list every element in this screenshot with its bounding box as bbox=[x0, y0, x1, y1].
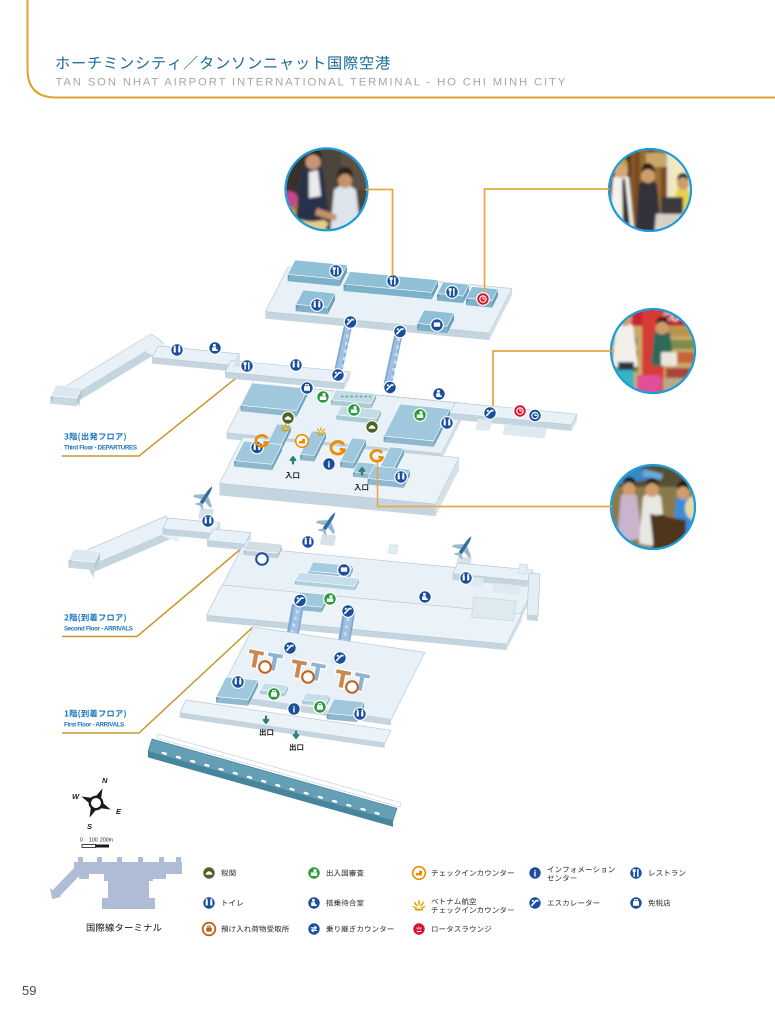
svg-text:Second Floor - ARRIVALS: Second Floor - ARRIVALS bbox=[64, 626, 133, 633]
svg-text:0: 0 bbox=[80, 838, 83, 844]
svg-text:59: 59 bbox=[22, 983, 36, 998]
svg-text:i: i bbox=[328, 459, 331, 470]
svg-text:i: i bbox=[534, 868, 537, 879]
svg-text:i: i bbox=[293, 704, 296, 715]
svg-text:W: W bbox=[72, 792, 80, 801]
svg-text:TAN SON NHAT AIRPORT INTERNATI: TAN SON NHAT AIRPORT INTERNATIONAL TERMI… bbox=[56, 77, 568, 89]
svg-text:N: N bbox=[102, 776, 108, 785]
svg-text:S: S bbox=[87, 822, 92, 831]
svg-text:First Floor - ARRIVALS: First Floor - ARRIVALS bbox=[64, 722, 124, 729]
svg-text:200m: 200m bbox=[100, 838, 113, 844]
svg-text:100: 100 bbox=[89, 838, 98, 844]
svg-text:Third Floor - DEPARTURES: Third Floor - DEPARTURES bbox=[64, 445, 137, 452]
